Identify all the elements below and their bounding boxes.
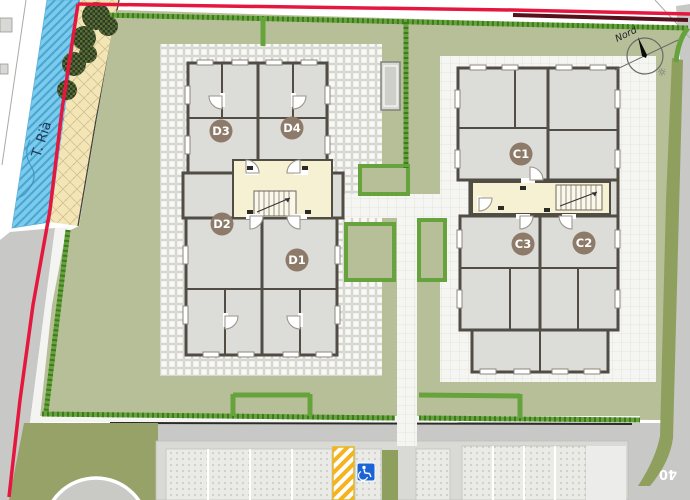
staircase-d [254, 191, 296, 216]
unit-label-c2: C2 [576, 236, 592, 250]
site-plan-drawing: D3 D4 D2 D1 [0, 0, 690, 500]
unit-badge-c3: C3 [512, 233, 535, 256]
parking-green-strip-1 [382, 450, 398, 500]
unit-badge-d2: D2 [211, 213, 234, 236]
unit-label-c1: C1 [513, 147, 529, 161]
unit-label-c3: C3 [515, 237, 531, 251]
building-c: C1 C3 C2 [455, 65, 620, 374]
parking-lot [156, 441, 628, 500]
unit-badge-c2: C2 [573, 232, 596, 255]
parking-paver-block-2 [416, 449, 450, 500]
garden-plot-b [346, 224, 394, 280]
building-d: D3 D4 D2 D1 [183, 60, 343, 357]
unit-label-d3: D3 [212, 124, 230, 138]
property-line-south [110, 423, 632, 424]
unit-badge-d4: D4 [281, 117, 304, 140]
sun-icon: ☼ [657, 66, 667, 79]
walkway-south-path [397, 216, 417, 446]
unit-badge-d1: D1 [286, 249, 309, 272]
unit-label-d2: D2 [213, 217, 231, 231]
unit-label-d1: D1 [288, 253, 306, 267]
disabled-parking-stripe [333, 447, 354, 500]
unit-badge-c1: C1 [510, 143, 533, 166]
utility-shed [381, 62, 400, 110]
road-marking-40: 40 [659, 466, 677, 481]
garden-plot-a [360, 166, 408, 194]
staircase-c [556, 185, 602, 210]
wheelchair-icon [357, 463, 375, 481]
walkway-central [338, 194, 458, 218]
site-plan-canvas: D3 D4 D2 D1 [0, 0, 690, 500]
southwest-green-area [9, 423, 158, 500]
garden-plot-c [419, 220, 445, 280]
parking-apron [586, 446, 626, 500]
unit-label-d4: D4 [283, 121, 301, 135]
unit-badge-d3: D3 [210, 120, 233, 143]
